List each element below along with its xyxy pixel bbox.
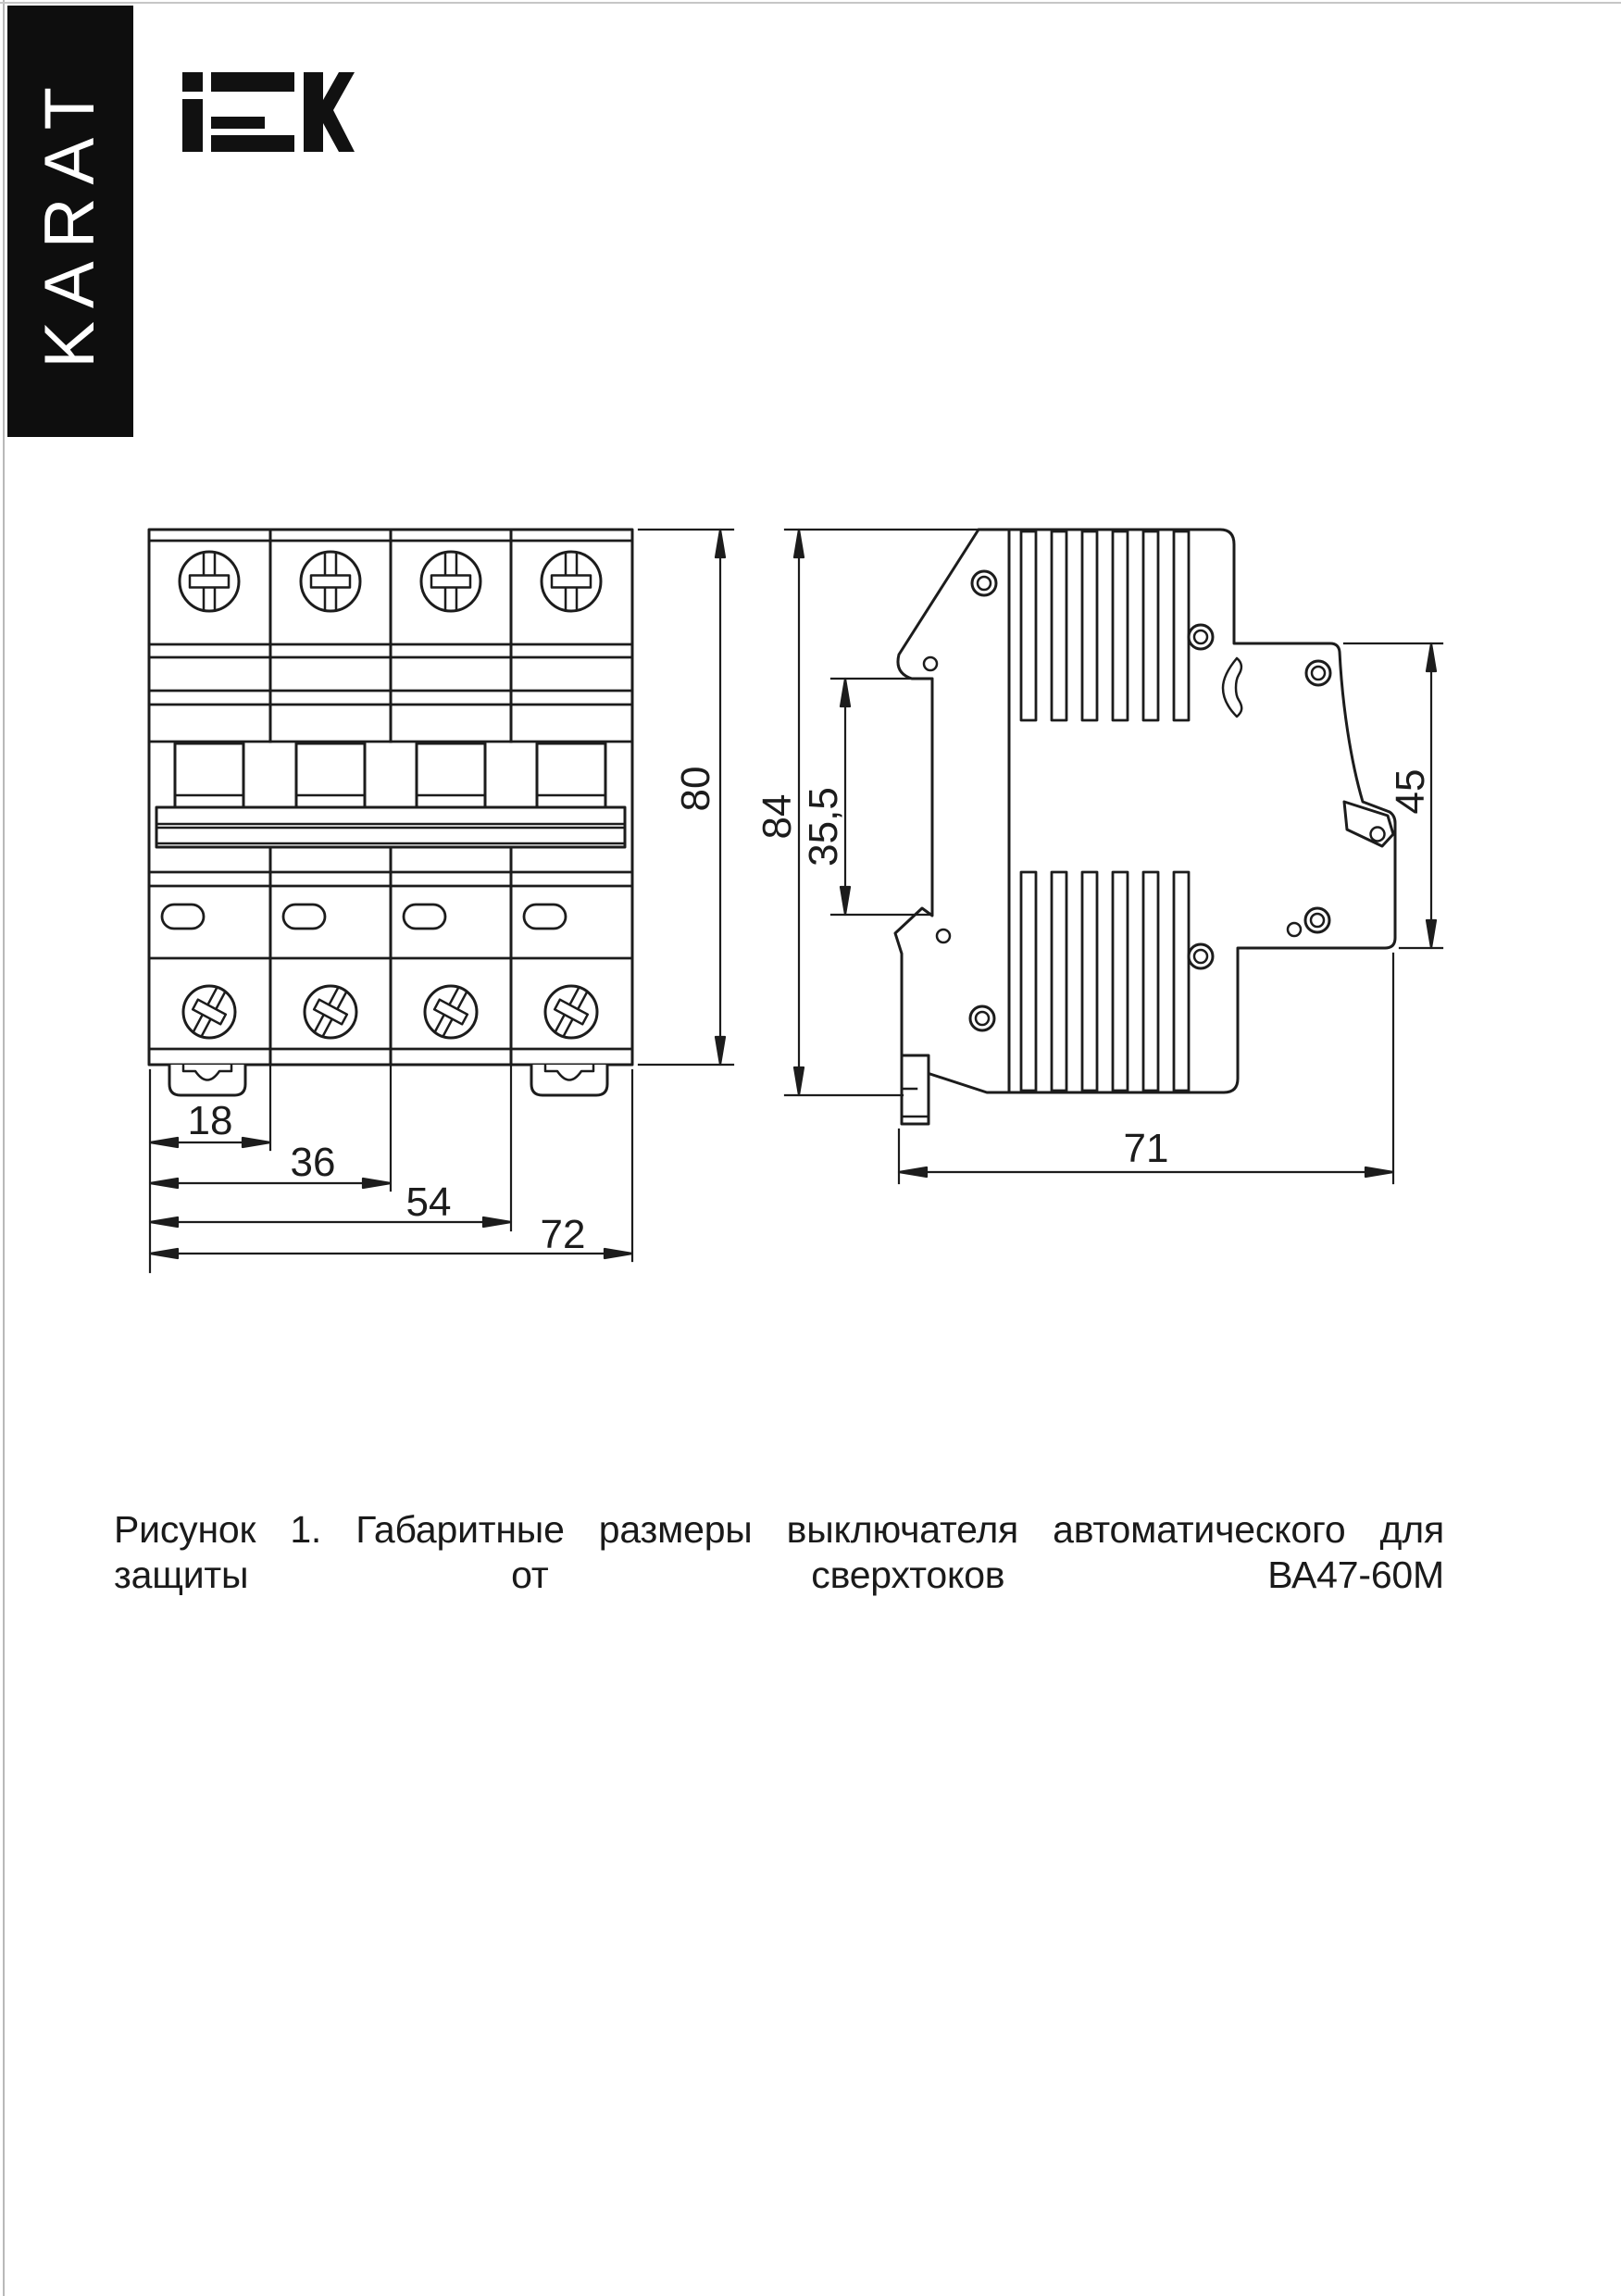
label-window — [524, 905, 566, 929]
dim-label-45: 45 — [1390, 769, 1431, 815]
dim-label-35-5: 35,5 — [804, 787, 844, 867]
label-window — [162, 905, 204, 929]
dim-label-84: 84 — [757, 794, 798, 840]
side-view — [895, 530, 1395, 1124]
toggle-pivot-hole — [924, 657, 937, 670]
toggle-handle — [175, 743, 243, 807]
toggle-crossbar — [156, 807, 625, 847]
dim-label-18: 18 — [188, 1101, 233, 1142]
dim-label-72: 72 — [541, 1215, 586, 1255]
dim-label-54: 54 — [406, 1182, 452, 1223]
label-window — [283, 905, 325, 929]
dim-36 — [150, 1179, 391, 1188]
toggle-handle — [417, 743, 485, 807]
technical-drawing — [0, 0, 1621, 2296]
toggle-handle — [296, 743, 365, 807]
side-din-clip — [902, 1055, 929, 1124]
screw-terminal — [180, 552, 239, 611]
dim-label-36: 36 — [291, 1142, 336, 1183]
label-window — [404, 905, 445, 929]
dim-label-71: 71 — [1124, 1129, 1169, 1169]
document-page: KARAT — [0, 0, 1621, 2296]
dim-label-80: 80 — [676, 767, 717, 812]
din-clip — [531, 1065, 607, 1095]
din-clip — [169, 1065, 245, 1095]
screw-terminal — [301, 552, 360, 611]
dim-35-5 — [831, 679, 932, 915]
screw-terminal — [421, 552, 480, 611]
dim-54 — [150, 1217, 511, 1227]
front-view — [149, 530, 632, 1095]
figure-caption: Рисунок 1. Габаритные размеры выключател… — [114, 1507, 1444, 1598]
toggle-handle — [537, 743, 605, 807]
screw-terminal — [542, 552, 601, 611]
